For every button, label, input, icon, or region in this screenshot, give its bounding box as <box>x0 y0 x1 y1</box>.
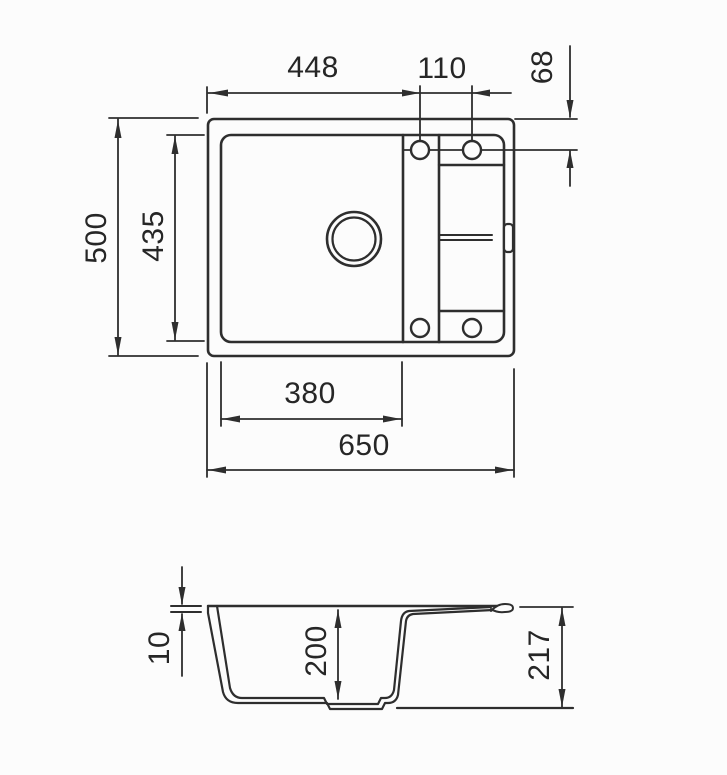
arrow-380-right <box>383 416 401 423</box>
drawing-canvas <box>0 0 727 775</box>
arrow-650-left <box>208 467 226 474</box>
section-view <box>171 567 573 709</box>
dim-label-448: 448 <box>287 53 339 83</box>
arrow-217-up <box>559 608 566 626</box>
dim-label-200: 200 <box>302 625 332 677</box>
tap-hole-bottom-right <box>463 319 481 337</box>
arrow-500-bottom <box>115 337 122 355</box>
sink-plan <box>208 119 514 356</box>
dim-label-380: 380 <box>284 379 336 409</box>
arrow-10-up <box>179 613 186 631</box>
section-inner-wall <box>217 606 491 704</box>
arrow-10-down <box>179 587 186 605</box>
arrow-650-right <box>495 467 513 474</box>
top-view <box>109 46 577 477</box>
dim-label-435: 435 <box>139 210 169 262</box>
tap-hole-top-left <box>411 141 429 159</box>
dim-label-10: 10 <box>145 631 175 665</box>
arrow-200-down <box>335 681 342 699</box>
arrow-217-down <box>559 689 566 707</box>
arrow-68-down <box>567 100 574 118</box>
tap-hole-top-right <box>463 141 481 159</box>
dim-label-110: 110 <box>417 54 466 84</box>
tap-hole-bottom-left <box>411 319 429 337</box>
dim-label-68: 68 <box>528 50 558 84</box>
overflow-notch <box>504 224 513 252</box>
arrow-448-right-110-left <box>402 90 420 97</box>
arrow-448-left <box>209 90 228 97</box>
arrow-200-up <box>335 610 342 628</box>
arrow-435-top <box>172 136 179 154</box>
arrow-500-top <box>115 120 122 138</box>
section-outer-wall <box>208 606 493 709</box>
arrow-110-right <box>472 90 490 97</box>
dim-label-217: 217 <box>525 629 555 681</box>
section-profile <box>208 604 513 709</box>
dim-label-500: 500 <box>82 212 112 264</box>
drain-inner-circle <box>333 218 376 261</box>
drain-outer-circle <box>327 212 381 266</box>
sink-technical-drawing: 448 110 68 500 435 380 650 10 200 217 <box>0 0 727 775</box>
dim-label-650: 650 <box>338 431 390 461</box>
section-dimension-lines <box>171 567 573 708</box>
arrow-68-up <box>567 150 574 168</box>
arrow-435-bottom <box>172 322 179 340</box>
arrow-380-left <box>222 416 240 423</box>
